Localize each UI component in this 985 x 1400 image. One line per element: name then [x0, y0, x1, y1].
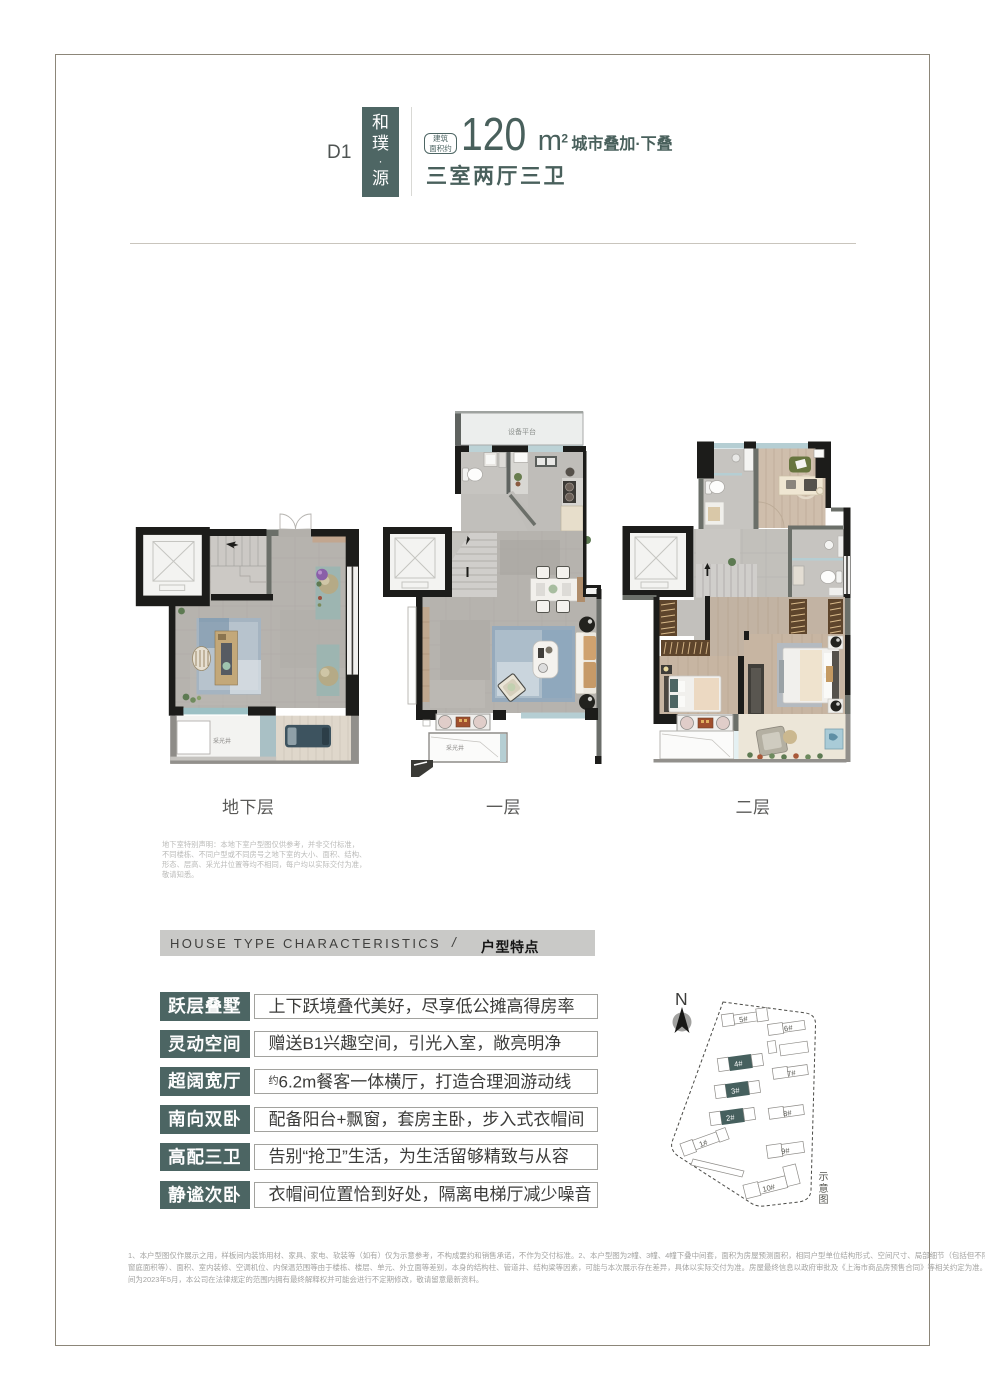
- svg-text:设备平台: 设备平台: [508, 427, 536, 436]
- svg-text:采光井: 采光井: [446, 744, 464, 752]
- svg-text:N: N: [675, 989, 688, 1009]
- svg-text:采光井: 采光井: [213, 737, 231, 745]
